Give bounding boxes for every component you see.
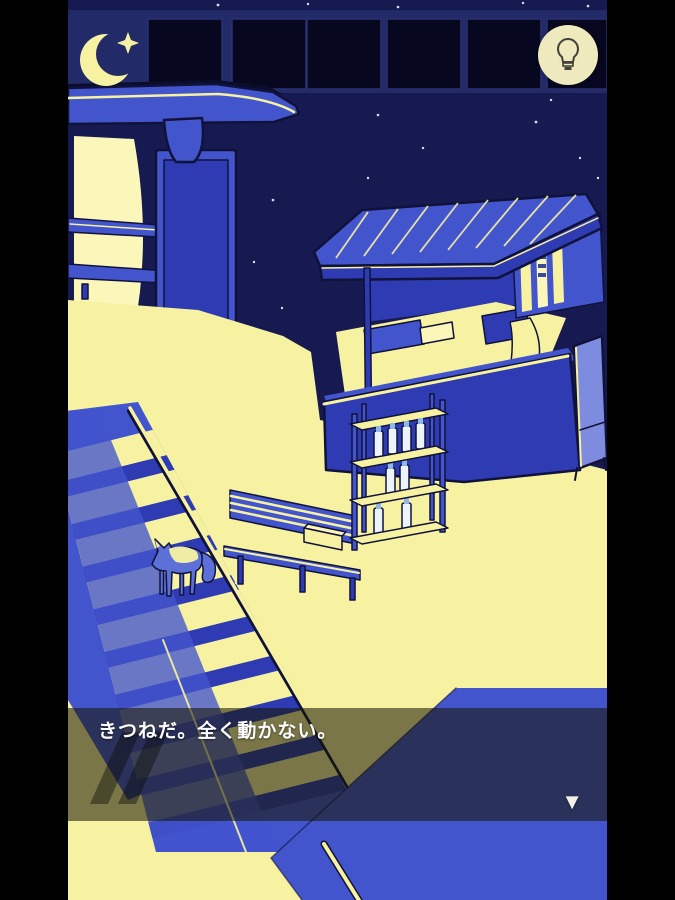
game-screen: きつねだ。全く動かない。 ▼ [0,0,675,900]
letterbox-right [607,0,675,900]
advance-arrow-icon[interactable]: ▼ [561,791,583,813]
hint-button[interactable] [538,25,598,85]
moon-icon [76,24,142,90]
a-frame-sign[interactable] [574,336,607,480]
lightbulb-icon [553,37,583,73]
dialogue-box[interactable]: きつねだ。全く動かない。 ▼ [68,708,607,821]
letterbox-left [0,0,68,900]
scene-viewport[interactable]: きつねだ。全く動かない。 ▼ [68,0,607,900]
dialogue-text: きつねだ。全く動かない。 [98,716,337,743]
